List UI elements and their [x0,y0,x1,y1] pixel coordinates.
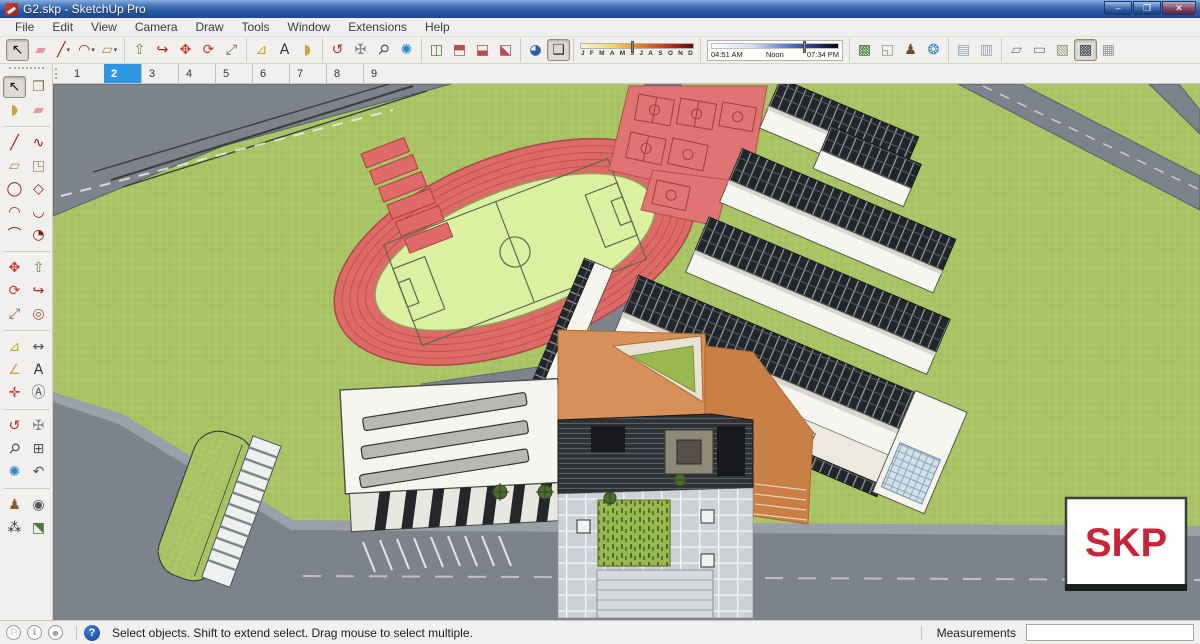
arc-tool-button[interactable]: ◠▾ [75,39,98,61]
plaza-steps [597,570,713,618]
shaded-style-icon: ▧ [1056,43,1069,57]
rectangle-tool-icon: ▱ [9,159,20,173]
pie-tool-button[interactable]: ◔ [27,224,50,246]
close-button[interactable]: ✕ [1162,1,1196,15]
line-tool-icon: ╱ [57,43,65,57]
scene-tab-3[interactable]: 3 [141,64,178,83]
push-pull-tool-icon: ⇧ [33,261,45,275]
month-label-1: F [590,50,594,57]
window-controls: – ❐ ✕ [1104,1,1196,15]
look-around-tool-icon: ◉ [32,498,44,512]
menu-window[interactable]: Window [279,18,340,36]
rotate-tool-button[interactable]: ⟳ [3,280,26,302]
time-end: 07:34 PM [807,50,839,59]
add-location-icon: ▩ [858,43,871,57]
rotate-tool-icon: ⟳ [9,284,21,298]
position-camera-tool-icon: ♟ [8,498,21,512]
planter-bed [598,500,670,566]
wireframe-style-button[interactable]: ▱ [1005,39,1028,61]
palette-separator [3,122,50,127]
text-tool-icon: A [280,43,290,57]
scene-tab-6[interactable]: 6 [252,64,289,83]
month-label-4: M [620,50,625,57]
eraser-tool-button[interactable]: ▰ [27,99,50,121]
palette-separator [3,484,50,489]
monochrome-style-button[interactable]: ▦ [1097,39,1120,61]
text-tool-button[interactable]: A [273,39,296,61]
menu-tools[interactable]: Tools [233,18,279,36]
skp-watermark-text: SKP [1085,521,1167,565]
three-point-arc-tool-icon: ⌒ [8,228,22,242]
shadow-month-track[interactable] [580,43,694,49]
paint-bucket-tool-icon: ◗ [304,43,311,57]
dropdown-caret-icon: ▾ [114,46,118,54]
statusbar: ⚐ℹ☻ ? Select objects. Shift to extend se… [0,620,1200,644]
month-label-8: S [658,50,662,57]
tabbar-drag-handle[interactable] [55,68,65,79]
pan-tool-icon: ✠ [355,43,367,57]
toolbar-group-principal: ↖▰╱▾◠▾▱▾ [3,38,125,62]
toolbar-group-section: ◫⬒⬓⬕ [422,38,521,62]
shadow-time-slider[interactable]: 04:51 AMNoon07:34 PM [707,40,843,61]
make-component-tool-icon: ❐ [32,80,45,94]
pan-tool-button[interactable]: ✠ [349,39,372,61]
scene-tab-bar: 123456789 [53,64,1200,84]
month-label-10: N [678,50,683,57]
tape-measure-tool-icon: ⊿ [256,43,268,57]
scene-tab-8[interactable]: 8 [326,64,363,83]
polygon-tool-button[interactable]: ◇ [27,178,50,200]
toolbar-group-construction: ⊿A◗ [247,38,323,62]
previous-view-tool-icon: ↶ [33,465,45,479]
menu-file[interactable]: File [6,18,43,36]
restore-button[interactable]: ❐ [1133,1,1161,15]
scene-tab-5[interactable]: 5 [215,64,252,83]
shadows-toggle-button[interactable]: ❏ [547,39,570,61]
measurements-divider [921,626,922,640]
push-pull-tool-button[interactable]: ⇧ [27,257,50,279]
palette-separator [3,405,50,410]
dimension-tool-button[interactable]: ↔ [27,336,50,358]
sketchup-window: G2.skp - SketchUp Pro – ❐ ✕ FileEditView… [0,0,1200,644]
scale-tool-icon: ⤢ [226,43,237,57]
menu-edit[interactable]: Edit [43,18,82,36]
hidden-line-style-button[interactable]: ▭ [1028,39,1051,61]
protractor-tool-button[interactable]: ∠ [3,359,26,381]
shadow-settings-dialog-icon: ◕ [529,43,541,57]
rotate-tool-button[interactable]: ⟳ [197,39,220,61]
zoom-window-tool-icon: ⊞ [33,442,45,456]
dropdown-caret-icon: ▾ [66,46,70,54]
zoom-extents-tool-button[interactable]: ✺ [395,39,418,61]
paint-bucket-tool-button[interactable]: ◗ [3,99,26,121]
move-tool-icon: ✥ [9,261,21,275]
entrance-plaza [558,488,753,618]
eraser-tool-icon: ▰ [33,103,44,117]
three-point-arc-tool-button[interactable]: ⌒ [3,224,26,246]
two-point-arc-tool-icon: ◡ [32,205,44,219]
scene-tab-9[interactable]: 9 [363,64,400,83]
eraser-tool-icon: ▰ [35,43,46,57]
scene-tab-4[interactable]: 4 [178,64,215,83]
arc-tool-icon: ◠ [8,205,20,219]
x-ray-style-button[interactable]: ▤ [952,39,975,61]
section-plane-tool-icon: ⬔ [32,521,45,535]
sign-in-icon[interactable]: ☻ [48,625,63,640]
month-label-7: A [648,50,653,57]
toolbar-group-camera: ↺✠⚲✺ [323,38,422,62]
display-section-planes-toggle-icon: ⬒ [453,43,466,57]
text-tool-button[interactable]: A [27,359,50,381]
model-canvas[interactable]: SKP [53,84,1200,620]
select-tool-icon: ↖ [9,80,21,94]
large-tool-set-palette: ↖❐◗▰╱∿▱◳◯◇◠◡⌒◔✥⇧⟳↪⤢◎⊿↔∠A✛Ⓐ↺✠⚲⊞✺↶♟◉⁂⬔ [0,64,53,620]
move-tool-button[interactable]: ✥ [174,39,197,61]
add-location-button[interactable]: ▩ [853,39,876,61]
shaded-style-button[interactable]: ▧ [1051,39,1074,61]
palette-separator [3,247,50,252]
scene-tab-1[interactable]: 1 [67,64,104,83]
follow-me-tool-button[interactable]: ↪ [27,280,50,302]
model-viewport[interactable]: SKP [53,84,1200,620]
display-section-cuts-toggle-icon: ⬓ [476,43,489,57]
protractor-tool-icon: ∠ [8,363,21,377]
monochrome-style-icon: ▦ [1102,43,1115,57]
zoom-tool-button[interactable]: ⚲ [3,438,26,460]
preview-in-google-earth-icon: ❂ [928,43,940,57]
line-tool-button[interactable]: ╱ [3,132,26,154]
display-section-planes-toggle-button[interactable]: ⬒ [448,39,471,61]
rotated-rectangle-tool-icon: ◳ [32,159,45,173]
time-start: 04:51 AM [711,50,743,59]
walk-tool-icon: ⁂ [8,521,22,535]
shadow-settings-dialog-button[interactable]: ◕ [524,39,547,61]
push-pull-tool-button[interactable]: ⇧ [128,39,151,61]
circle-tool-button[interactable]: ◯ [3,178,26,200]
freehand-tool-button[interactable]: ∿ [27,132,50,154]
freehand-tool-icon: ∿ [33,136,45,150]
menu-draw[interactable]: Draw [187,18,233,36]
status-icons: ⚐ℹ☻ [6,625,69,640]
circle-tool-icon: ◯ [7,182,23,196]
gymnasium-building [340,379,565,532]
offset-tool-icon: ◎ [32,307,44,321]
menu-view[interactable]: View [82,18,126,36]
section-plane-tool-button[interactable]: ◫ [425,39,448,61]
month-label-11: D [688,50,693,57]
menu-help[interactable]: Help [416,18,459,36]
main-area: ↖❐◗▰╱∿▱◳◯◇◠◡⌒◔✥⇧⟳↪⤢◎⊿↔∠A✛Ⓐ↺✠⚲⊞✺↶♟◉⁂⬔ 123… [0,64,1200,620]
line-tool-icon: ╱ [10,136,18,150]
move-tool-button[interactable]: ✥ [3,257,26,279]
pan-tool-button[interactable]: ✠ [27,415,50,437]
scale-tool-button[interactable]: ⤢ [220,39,243,61]
rectangle-tool-icon: ▱ [102,43,113,57]
rectangle-tool-button[interactable]: ▱ [3,155,26,177]
statusbar-divider [76,626,77,640]
palette-drag-handle[interactable] [9,67,44,73]
move-tool-icon: ✥ [180,43,192,57]
scale-tool-button[interactable]: ⤢ [3,303,26,325]
pan-tool-icon: ✠ [33,419,45,433]
toolbar-group-month-slider: JFMAMJJASOND [574,38,701,62]
3d-text-tool-icon: Ⓐ [32,386,46,400]
make-component-tool-button[interactable]: ❐ [27,76,50,98]
pie-tool-icon: ◔ [32,228,44,242]
two-point-arc-tool-button[interactable]: ◡ [27,201,50,223]
toggle-terrain-button[interactable]: ◱ [876,39,899,61]
dropdown-caret-icon: ▾ [91,46,95,54]
palette-separator [3,326,50,331]
orbit-tool-button[interactable]: ↺ [3,415,26,437]
shadow-month-labels: JFMAMJJASOND [580,50,694,57]
scene-tab-2[interactable]: 2 [104,64,141,83]
shadow-time-thumb[interactable] [803,41,806,53]
position-camera-tool-button[interactable]: ♟ [3,494,26,516]
orbit-tool-button[interactable]: ↺ [326,39,349,61]
follow-me-tool-icon: ↪ [157,43,169,57]
push-pull-tool-icon: ⇧ [134,43,146,57]
3d-text-tool-button[interactable]: Ⓐ [27,382,50,404]
follow-me-tool-button[interactable]: ↪ [151,39,174,61]
walk-tool-button[interactable]: ⁂ [3,517,26,539]
menubar: FileEditViewCameraDrawToolsWindowExtensi… [0,18,1200,37]
display-section-cuts-toggle-button[interactable]: ⬓ [471,39,494,61]
geolocation-status-icon[interactable]: ⚐ [6,625,21,640]
follow-me-tool-icon: ↪ [33,284,45,298]
zoom-tool-icon: ⚲ [375,41,392,58]
select-tool-button[interactable]: ↖ [3,76,26,98]
photo-textures-button[interactable]: ♟ [899,39,922,61]
measurements-label: Measurements [937,626,1016,640]
paint-bucket-tool-icon: ◗ [11,103,18,117]
display-section-fill-toggle-icon: ⬕ [499,43,512,57]
back-edges-style-icon: ▥ [980,43,993,57]
select-tool-button[interactable]: ↖ [6,39,29,61]
axes-tool-icon: ✛ [9,386,21,400]
zoom-extents-tool-icon: ✺ [9,465,21,479]
x-ray-style-icon: ▤ [957,43,970,57]
toolbar-group-shadow: ◕❏ [521,38,574,62]
polygon-tool-icon: ◇ [33,182,44,196]
titlebar: G2.skp - SketchUp Pro – ❐ ✕ [0,0,1200,18]
month-label-0: J [581,50,585,57]
hidden-line-style-icon: ▭ [1033,43,1046,57]
paint-bucket-tool-button[interactable]: ◗ [296,39,319,61]
sketchup-logo-icon [5,3,18,16]
status-message: Select objects. Shift to extend select. … [112,626,473,640]
axes-tool-button[interactable]: ✛ [3,382,26,404]
toolbar-group-time-slider: 04:51 AMNoon07:34 PM [701,38,850,62]
rectangle-tool-button[interactable]: ▱▾ [98,39,121,61]
toolbar-group-edit: ⇧↪✥⟳⤢ [125,38,247,62]
wireframe-style-icon: ▱ [1011,43,1022,57]
window-title: G2.skp - SketchUp Pro [23,2,146,16]
zoom-tool-button[interactable]: ⚲ [372,39,395,61]
zoom-tool-icon: ⚲ [6,440,23,457]
zoom-extents-tool-button[interactable]: ✺ [3,461,26,483]
month-label-3: A [610,50,615,57]
toolbar-group-location: ▩◱♟❂ [850,38,949,62]
scene-tab-7[interactable]: 7 [289,64,326,83]
menu-camera[interactable]: Camera [126,18,187,36]
section-plane-tool-button[interactable]: ⬔ [27,517,50,539]
shadows-toggle-icon: ❏ [552,43,565,57]
toolbar-group-face-styles: ▱▭▧▩▦ [1002,38,1123,62]
rotate-tool-icon: ⟳ [203,43,215,57]
toolbar: ↖▰╱▾◠▾▱▾⇧↪✥⟳⤢⊿A◗↺✠⚲✺◫⬒⬓⬕◕❏JFMAMJJASOND04… [0,37,1200,64]
tape-measure-tool-icon: ⊿ [9,340,21,354]
toggle-terrain-icon: ◱ [881,43,894,57]
tape-measure-tool-button[interactable]: ⊿ [250,39,273,61]
shadow-time-labels: 04:51 AMNoon07:34 PM [711,50,839,59]
skp-watermark: SKP [1065,498,1187,591]
zoom-extents-tool-icon: ✺ [401,43,413,57]
shaded-with-textures-style-button[interactable]: ▩ [1074,39,1097,61]
help-icon[interactable]: ? [84,625,100,641]
scale-tool-icon: ⤢ [9,307,20,321]
shaded-with-textures-style-icon: ▩ [1079,43,1092,57]
look-around-tool-button[interactable]: ◉ [27,494,50,516]
line-tool-button[interactable]: ╱▾ [52,39,75,61]
section-plane-tool-icon: ◫ [430,43,443,57]
back-edges-style-button[interactable]: ▥ [975,39,998,61]
rotated-rectangle-tool-button[interactable]: ◳ [27,155,50,177]
shadow-month-thumb[interactable] [631,41,634,53]
palette-grid: ↖❐◗▰╱∿▱◳◯◇◠◡⌒◔✥⇧⟳↪⤢◎⊿↔∠A✛Ⓐ↺✠⚲⊞✺↶♟◉⁂⬔ [3,76,50,539]
tape-measure-tool-button[interactable]: ⊿ [3,336,26,358]
month-label-9: O [668,50,673,57]
month-label-2: M [599,50,604,57]
photo-textures-icon: ♟ [904,43,917,57]
time-mid: Noon [766,50,784,59]
menu-extensions[interactable]: Extensions [339,18,416,36]
preview-in-google-earth-button[interactable]: ❂ [922,39,945,61]
orbit-tool-icon: ↺ [332,43,344,57]
credit-attribution-icon[interactable]: ℹ [27,625,42,640]
select-tool-icon: ↖ [12,43,24,57]
display-section-fill-toggle-button[interactable]: ⬕ [494,39,517,61]
viewport-column: 123456789 [53,64,1200,620]
eraser-tool-button[interactable]: ▰ [29,39,52,61]
shadow-month-slider[interactable]: JFMAMJJASOND [580,43,694,57]
offset-tool-button[interactable]: ◎ [27,303,50,325]
previous-view-tool-button[interactable]: ↶ [27,461,50,483]
month-label-6: J [639,50,643,57]
orbit-tool-icon: ↺ [9,419,21,433]
toolbar-group-style-edges: ▤▥ [949,38,1002,62]
minimize-button[interactable]: – [1104,1,1132,15]
text-tool-icon: A [34,363,44,377]
arc-tool-icon: ◠ [78,43,90,57]
zoom-window-tool-button[interactable]: ⊞ [27,438,50,460]
measurements-input[interactable] [1026,624,1194,641]
shadow-time-track[interactable] [711,43,839,49]
arc-tool-button[interactable]: ◠ [3,201,26,223]
dimension-tool-icon: ↔ [33,340,45,354]
